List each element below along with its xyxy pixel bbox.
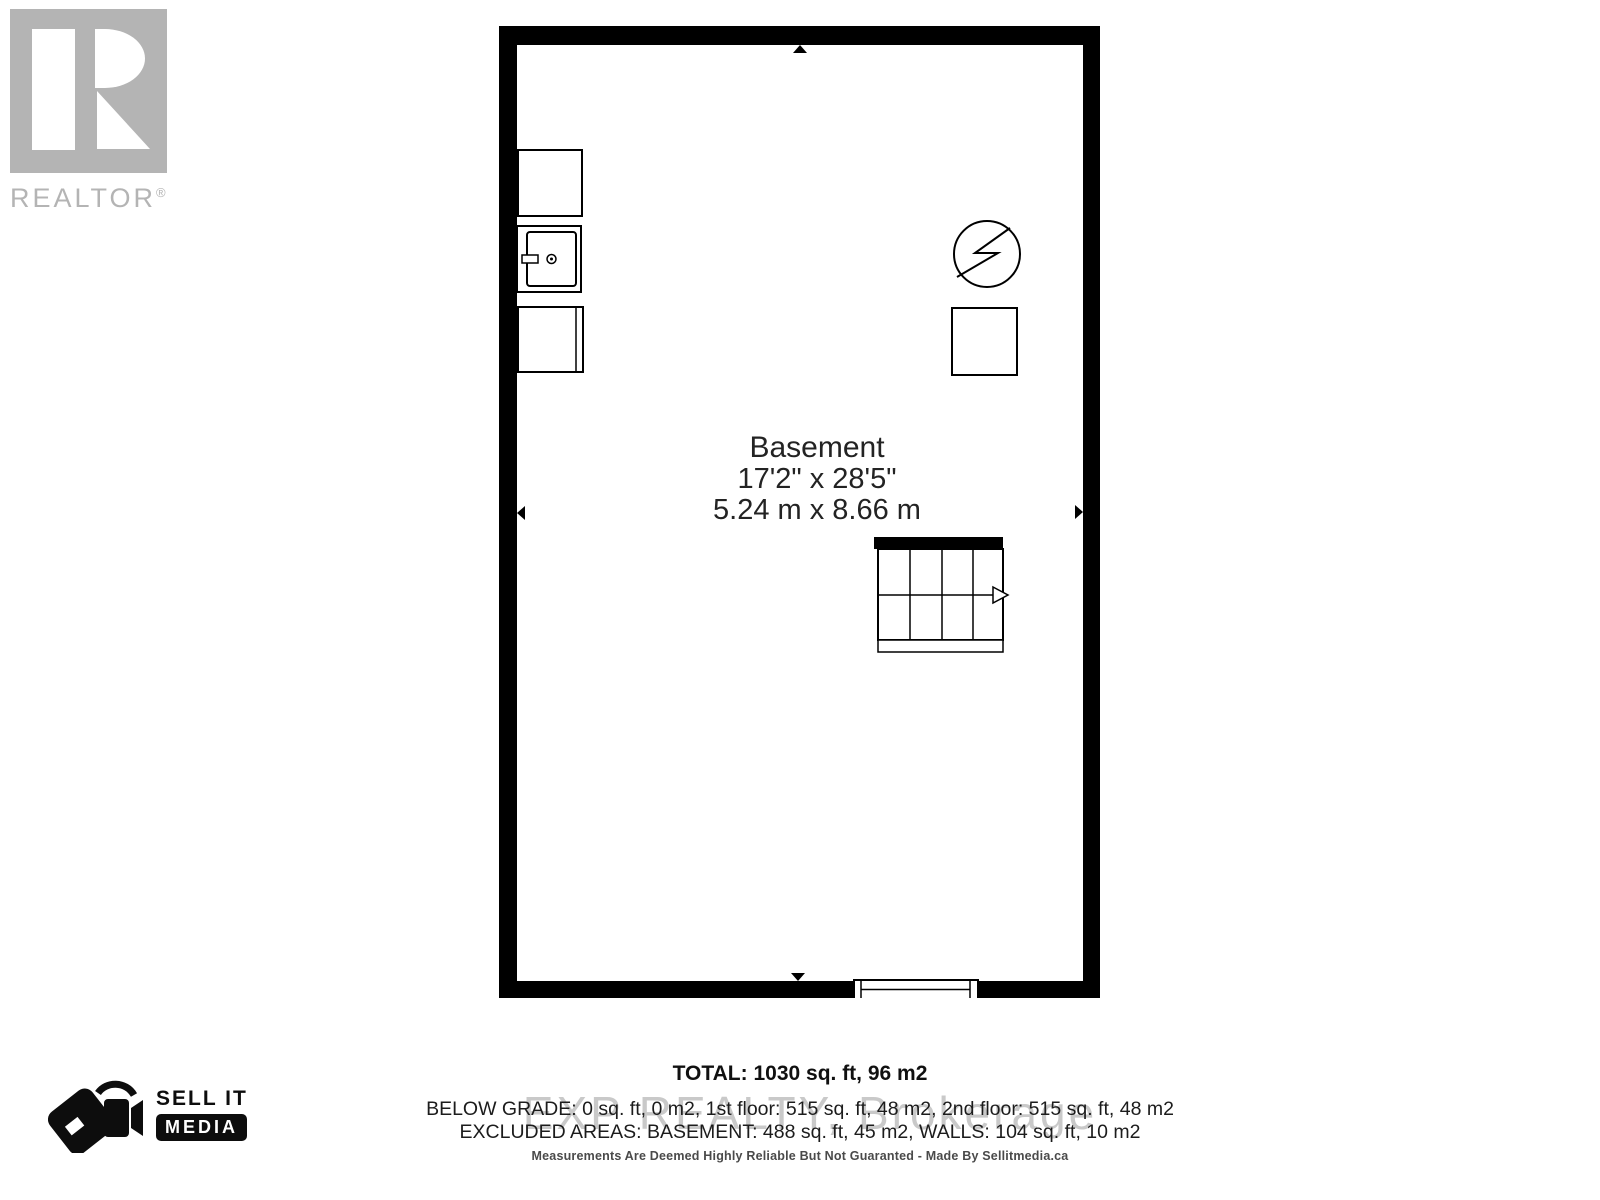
window-icon xyxy=(854,980,978,998)
realtor-word-text: REALTOR xyxy=(10,183,156,213)
room-name: Basement xyxy=(713,432,921,464)
sellit-media-logo: SELL IT MEDIA xyxy=(48,1075,248,1153)
room-dimensions-metric: 5.24 m x 8.66 m xyxy=(713,495,921,526)
electrical-icon xyxy=(954,221,1020,287)
sellit-wordmark-badge: MEDIA xyxy=(156,1114,247,1141)
room-label: Basement 17'2" x 28'5" 5.24 m x 8.66 m xyxy=(713,432,921,526)
realtor-wordmark: REALTOR® xyxy=(10,183,190,214)
realtor-logo: REALTOR® xyxy=(10,9,190,214)
stairs-icon xyxy=(874,537,1008,652)
utility-square-icon xyxy=(952,308,1017,375)
sellit-tag-camera-icon xyxy=(48,1075,144,1153)
realtor-r-icon xyxy=(10,9,167,173)
cabinet-bottom-icon xyxy=(518,307,583,372)
registered-mark: ® xyxy=(156,185,166,200)
room-dimensions-imperial: 17'2" x 28'5" xyxy=(713,464,921,495)
washer-drawer xyxy=(522,255,538,263)
washer-icon xyxy=(517,226,581,292)
stairs-landing xyxy=(878,640,1003,652)
sellit-wordmark-top: SELL IT xyxy=(156,1087,248,1111)
cabinet-top-icon xyxy=(518,150,582,216)
floorplan-page: REALTOR® xyxy=(0,0,1600,1200)
stairs-wall-bar xyxy=(874,537,1003,549)
sellit-wordmark: SELL IT MEDIA xyxy=(156,1087,248,1141)
